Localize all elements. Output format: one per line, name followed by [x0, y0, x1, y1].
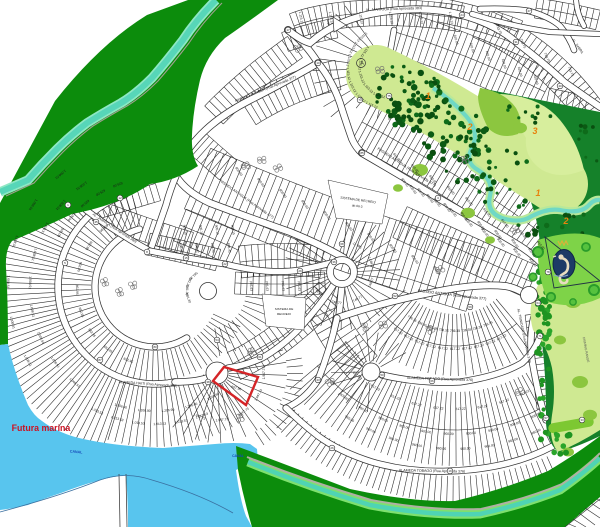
svg-text:Futura marina: Futura marina [12, 423, 71, 433]
svg-text:SISTEMA DE: SISTEMA DE [275, 307, 294, 311]
svg-text:617.22: 617.22 [455, 407, 465, 411]
svg-text:26: 26 [330, 446, 334, 450]
svg-text:43: 43 [316, 378, 320, 382]
svg-text:15: 15 [184, 256, 188, 260]
svg-text:3: 3 [532, 126, 537, 136]
svg-text:1: 1 [425, 91, 430, 101]
svg-text:40: 40 [558, 84, 562, 88]
svg-text:960.00: 960.00 [460, 446, 470, 451]
svg-text:64: 64 [536, 301, 540, 305]
svg-text:736.35: 736.35 [450, 329, 460, 333]
svg-text:45: 45 [94, 220, 98, 224]
svg-text:31: 31 [514, 40, 518, 44]
svg-text:1.008.51: 1.008.51 [6, 275, 10, 288]
svg-text:80: 80 [153, 345, 157, 349]
svg-text:50: 50 [380, 373, 384, 377]
svg-text:78: 78 [546, 270, 550, 274]
svg-text:10: 10 [316, 61, 320, 65]
svg-text:52: 52 [393, 294, 397, 298]
svg-text:1: 1 [535, 188, 540, 198]
svg-text:87: 87 [98, 358, 102, 362]
svg-text:66: 66 [430, 379, 434, 383]
svg-text:33: 33 [580, 418, 584, 422]
svg-text:57: 57 [544, 416, 548, 420]
svg-text:75: 75 [387, 94, 391, 98]
svg-text:38: 38 [206, 380, 210, 384]
svg-text:22: 22 [223, 262, 227, 266]
svg-text:68: 68 [340, 242, 344, 246]
svg-text:24: 24 [460, 13, 464, 17]
svg-text:1.008.51: 1.008.51 [28, 276, 32, 289]
svg-text:2: 2 [466, 122, 472, 132]
svg-text:71: 71 [538, 334, 542, 338]
svg-text:960.00: 960.00 [436, 446, 447, 451]
svg-text:RECREIO: RECREIO [277, 312, 292, 316]
svg-text:1.013.53: 1.013.53 [153, 422, 166, 426]
svg-text:36: 36 [332, 260, 336, 264]
svg-text:617.22: 617.22 [450, 347, 460, 351]
svg-text:652.95: 652.95 [75, 285, 79, 295]
svg-text:12: 12 [118, 196, 122, 200]
svg-text:17: 17 [286, 28, 290, 32]
svg-text:CANAL: CANAL [232, 454, 244, 458]
svg-text:47: 47 [527, 9, 531, 13]
svg-text:19: 19 [448, 469, 452, 473]
svg-text:85: 85 [360, 151, 364, 155]
svg-text:1.947.73: 1.947.73 [262, 366, 266, 379]
svg-text:61: 61 [258, 355, 262, 359]
svg-text:54: 54 [215, 338, 219, 342]
svg-text:900.00: 900.00 [443, 432, 453, 436]
svg-text:59: 59 [468, 305, 472, 309]
svg-text:29: 29 [298, 269, 302, 273]
svg-text:2: 2 [562, 216, 568, 226]
